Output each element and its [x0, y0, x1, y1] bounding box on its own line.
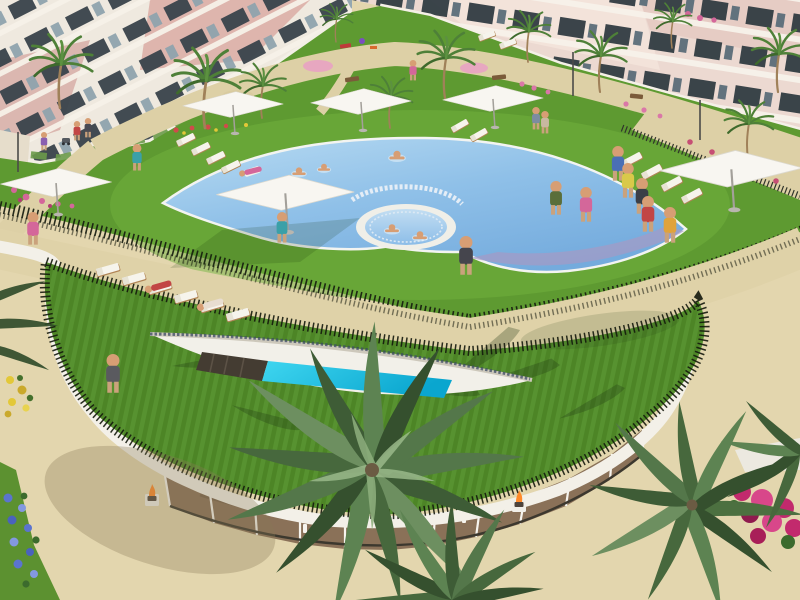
resort-render: Aerial 3D architectural rendering of a r… — [0, 0, 800, 600]
palm-crown-center-core — [365, 463, 379, 477]
play-circle — [303, 60, 333, 72]
spa-pool-water — [365, 209, 447, 245]
door-handle — [303, 524, 307, 533]
render-viewport: Bird's-eye render of an apartment comple… — [0, 0, 800, 600]
